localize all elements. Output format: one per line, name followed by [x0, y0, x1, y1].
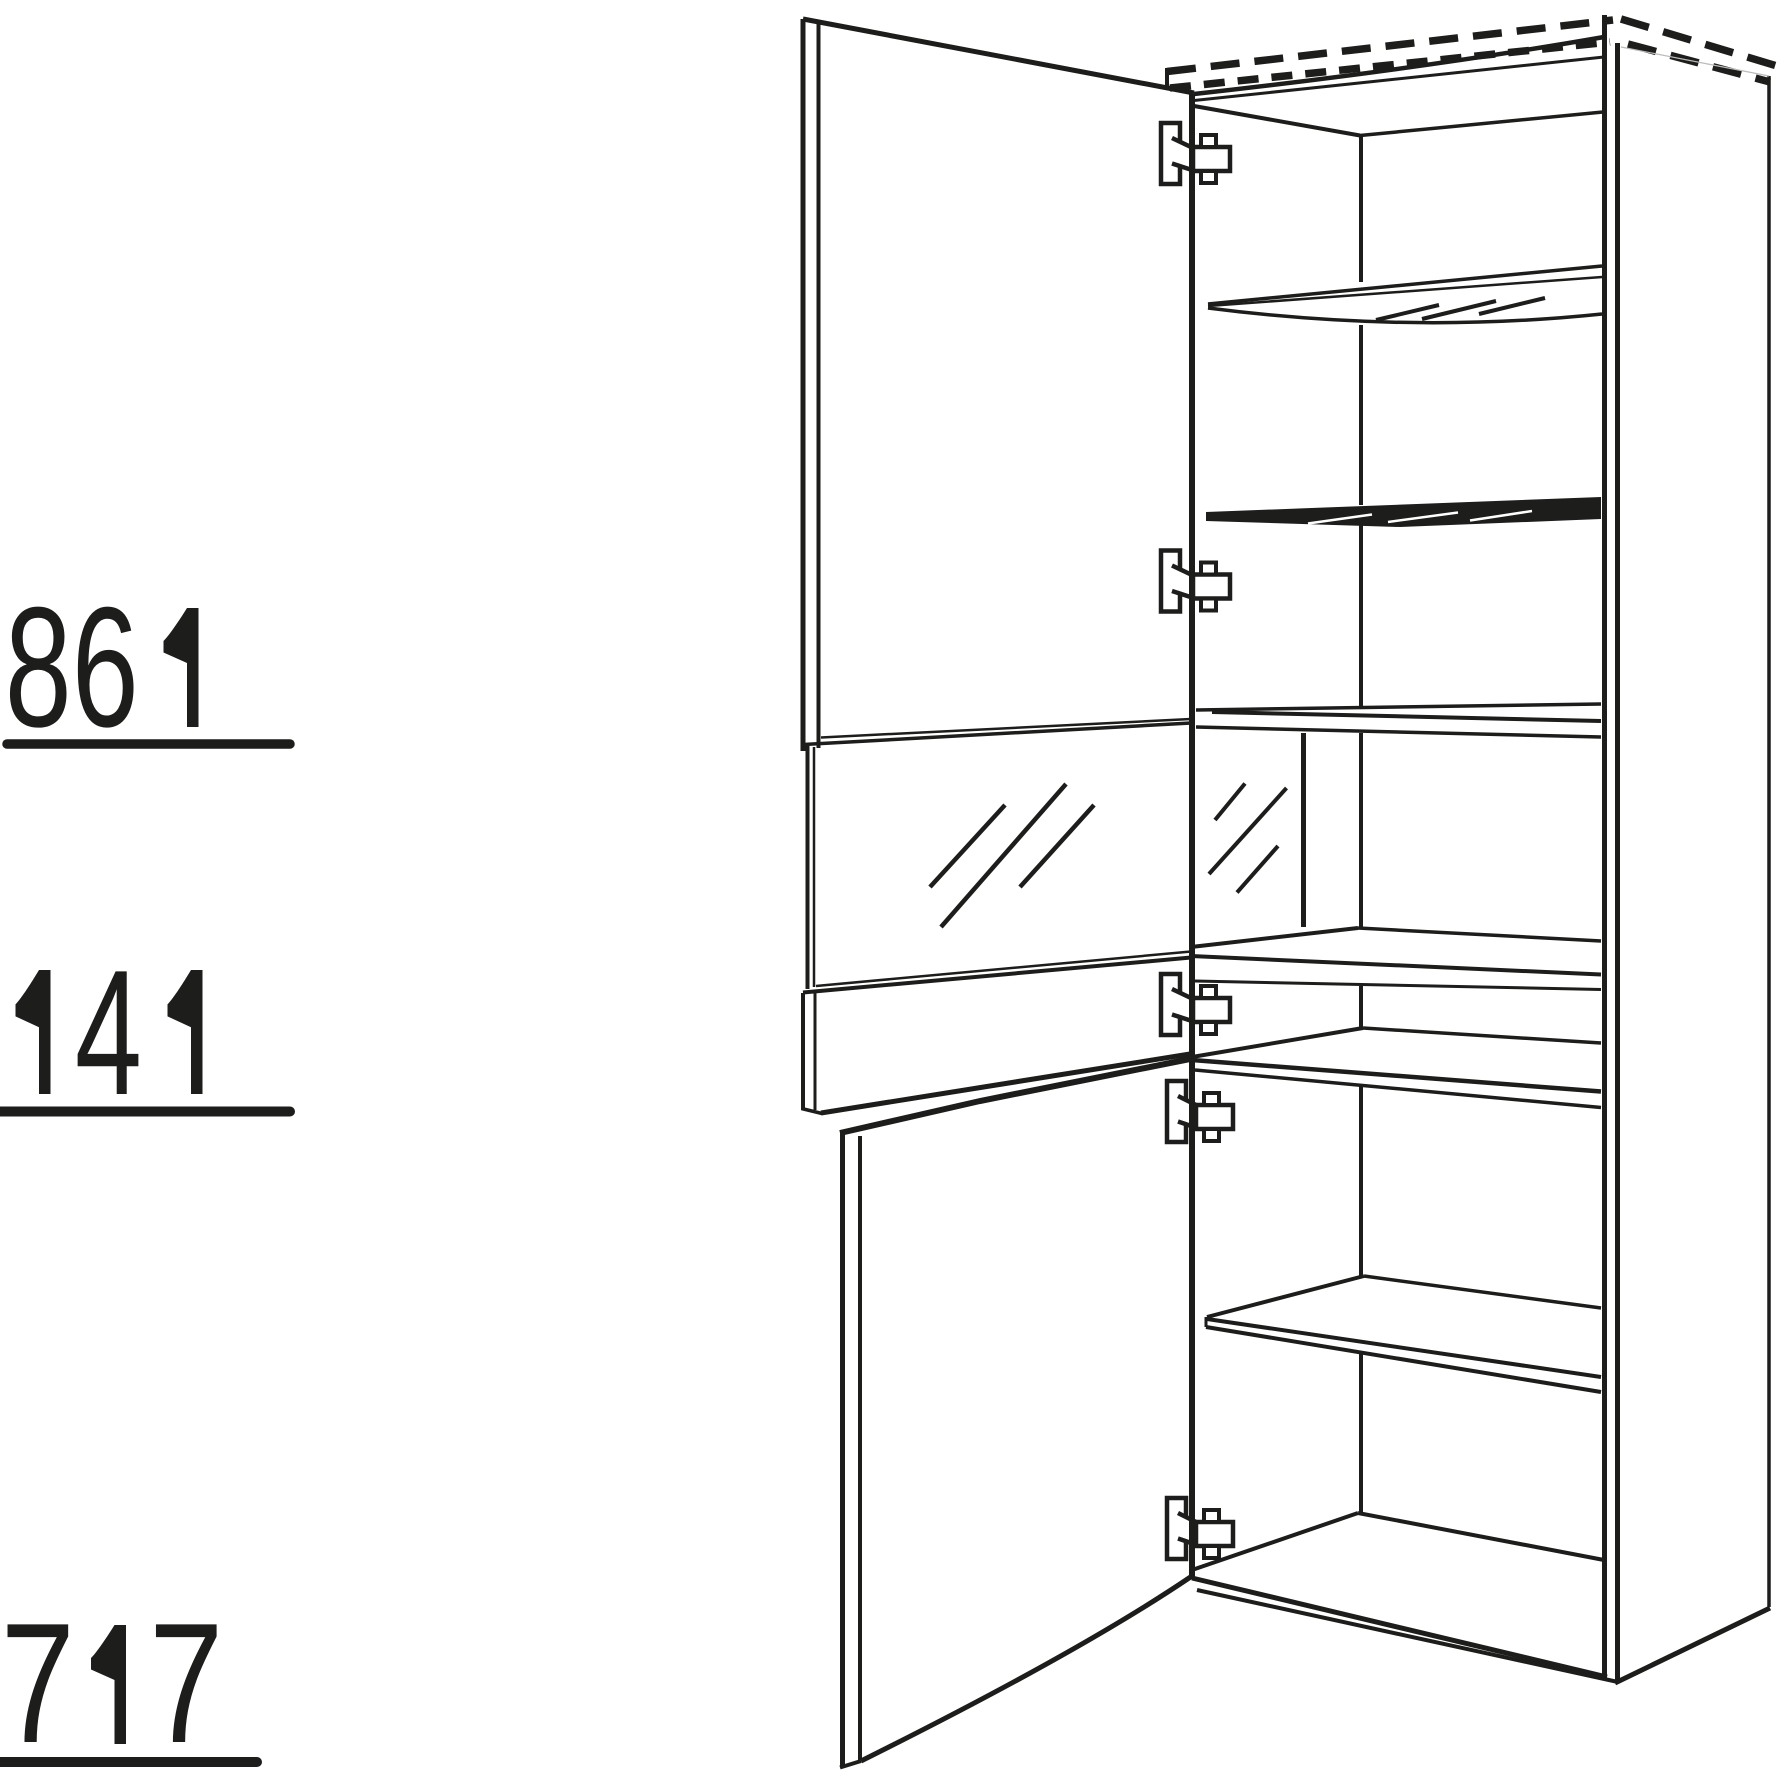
svg-text:86: 86: [5, 572, 139, 763]
svg-text:7: 7: [1, 1588, 75, 1777]
svg-text:7: 7: [149, 1588, 223, 1777]
svg-text:4: 4: [75, 934, 142, 1133]
